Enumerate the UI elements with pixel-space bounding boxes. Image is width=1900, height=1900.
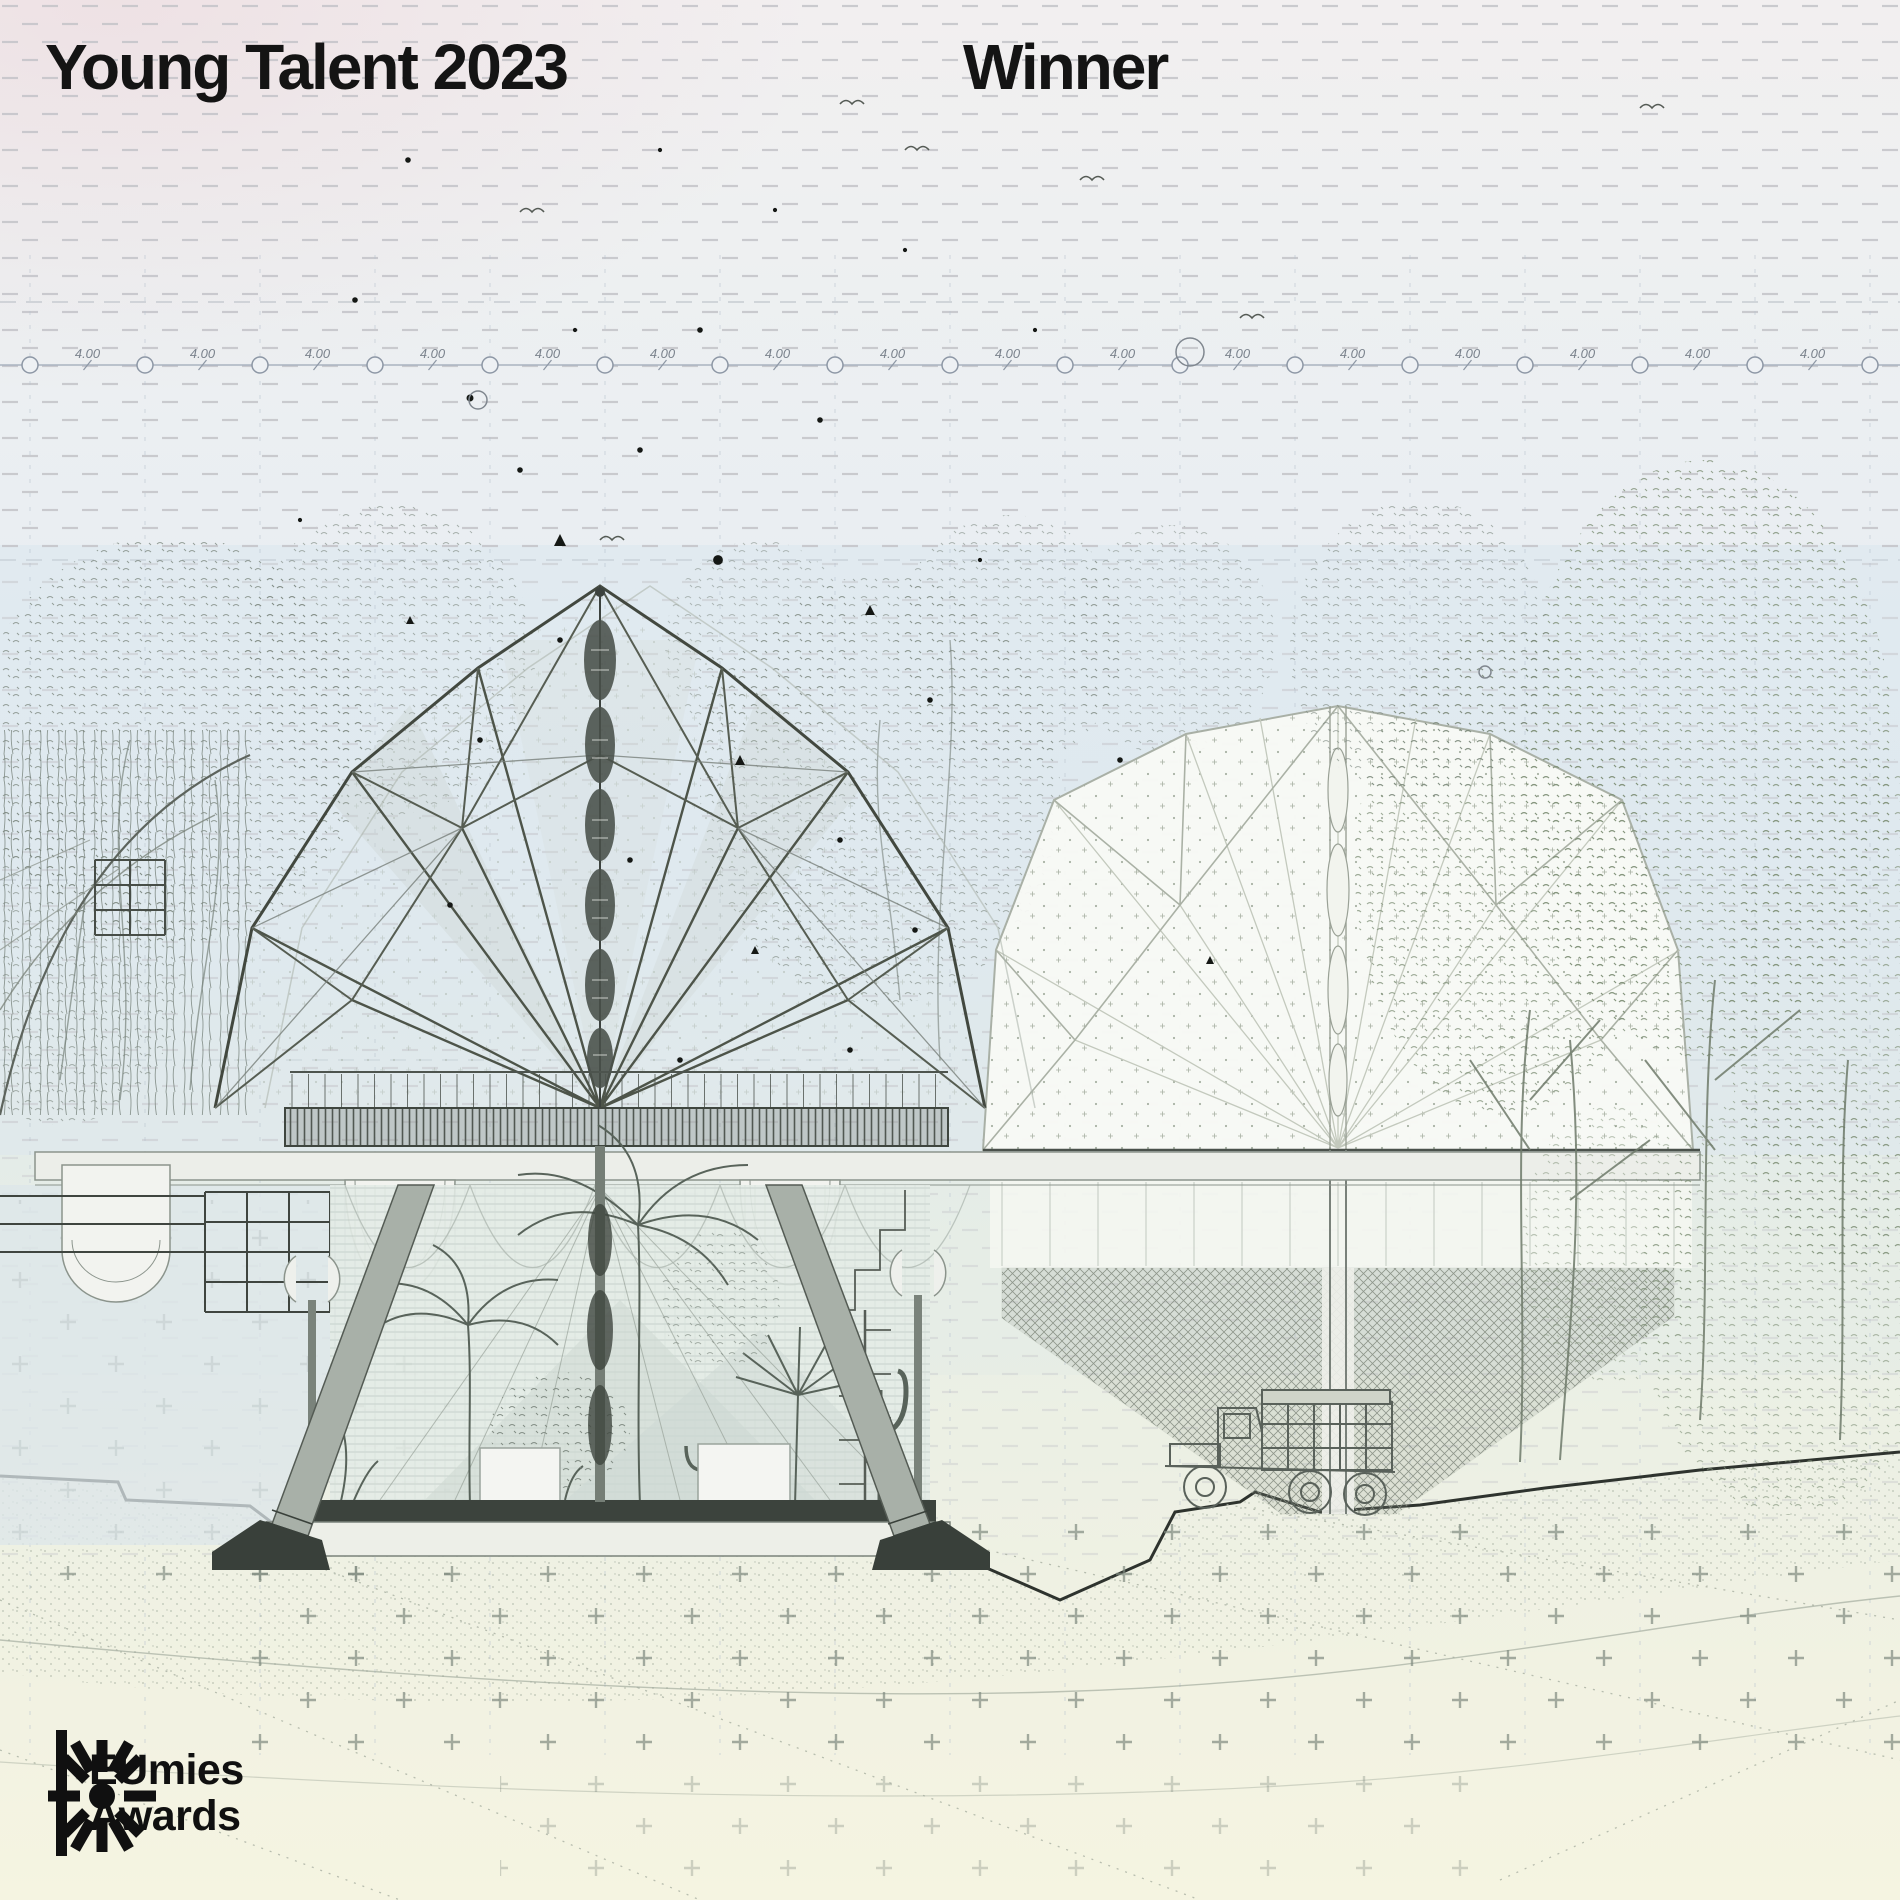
eumies-awards-logo: EUmies Awards <box>38 1730 244 1856</box>
svg-text:4.00: 4.00 <box>1225 346 1251 361</box>
svg-text:4.00: 4.00 <box>1110 346 1136 361</box>
svg-text:4.00: 4.00 <box>880 346 906 361</box>
svg-text:4.00: 4.00 <box>305 346 331 361</box>
page-title: Young Talent 2023 <box>45 30 567 104</box>
svg-text:4.00: 4.00 <box>995 346 1021 361</box>
svg-text:4.00: 4.00 <box>650 346 676 361</box>
svg-text:4.00: 4.00 <box>190 346 216 361</box>
svg-text:4.00: 4.00 <box>1455 346 1481 361</box>
asterisk-star-icon <box>38 1730 166 1862</box>
svg-text:4.00: 4.00 <box>75 346 101 361</box>
svg-text:4.00: 4.00 <box>1800 346 1826 361</box>
svg-text:4.00: 4.00 <box>535 346 561 361</box>
svg-text:4.00: 4.00 <box>1570 346 1596 361</box>
svg-text:4.00: 4.00 <box>1685 346 1711 361</box>
architectural-section-drawing: 4.004.004.004.004.004.004.004.004.004.00… <box>0 0 1900 1900</box>
winner-label: Winner <box>963 30 1167 104</box>
svg-text:4.00: 4.00 <box>1340 346 1366 361</box>
poster: 4.004.004.004.004.004.004.004.004.004.00… <box>0 0 1900 1900</box>
svg-text:4.00: 4.00 <box>420 346 446 361</box>
svg-text:4.00: 4.00 <box>765 346 791 361</box>
